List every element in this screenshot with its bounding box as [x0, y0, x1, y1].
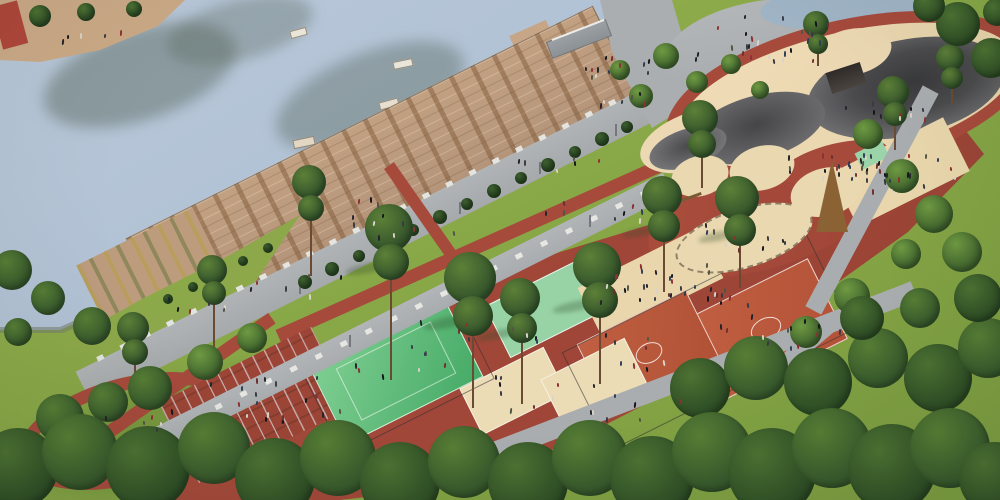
tree-canopy	[31, 281, 65, 315]
tree-canopy	[595, 132, 609, 146]
person	[809, 31, 811, 37]
person	[822, 176, 824, 181]
tree-canopy	[263, 243, 273, 253]
person	[80, 33, 82, 39]
tree-canopy	[77, 3, 95, 21]
tree-canopy	[238, 256, 248, 266]
tree-canopy	[891, 239, 921, 269]
person	[353, 222, 355, 228]
tree-canopy	[433, 210, 447, 224]
tree-canopy	[4, 318, 32, 346]
tree-canopy	[541, 158, 555, 172]
tree-canopy	[188, 282, 198, 292]
person	[378, 235, 380, 241]
person	[670, 279, 672, 284]
person	[275, 381, 277, 387]
tree-canopy	[840, 296, 884, 340]
person	[256, 378, 258, 384]
person	[67, 35, 69, 40]
person	[766, 236, 768, 241]
person	[784, 51, 786, 57]
person	[339, 275, 341, 280]
person	[801, 30, 803, 34]
tree-canopy	[461, 198, 473, 210]
tree-canopy	[373, 244, 409, 280]
tree-canopy	[292, 165, 326, 199]
tree-canopy	[670, 358, 730, 418]
tree-canopy	[724, 214, 756, 246]
tree-canopy	[126, 1, 142, 17]
person	[170, 409, 173, 415]
person	[899, 116, 901, 121]
person	[872, 189, 874, 195]
person	[922, 107, 924, 111]
tree-canopy	[784, 348, 852, 416]
person	[509, 407, 512, 413]
tree-canopy	[187, 344, 223, 380]
tree-canopy	[942, 232, 982, 272]
tree-canopy	[29, 5, 51, 27]
playground-pyramid-tower	[816, 160, 848, 232]
person	[743, 15, 746, 20]
person	[806, 37, 809, 43]
person	[597, 67, 599, 73]
person	[749, 55, 751, 60]
person	[643, 284, 645, 290]
tree-canopy	[724, 336, 788, 400]
tree-canopy	[853, 119, 883, 149]
tree-canopy	[487, 184, 501, 198]
tree-canopy	[128, 366, 172, 410]
person	[907, 172, 909, 178]
tree-canopy	[688, 130, 716, 158]
person	[168, 297, 170, 302]
tree-canopy	[721, 54, 741, 74]
person	[715, 293, 718, 299]
person	[465, 323, 467, 327]
person	[922, 184, 925, 189]
person	[646, 367, 649, 372]
person	[788, 155, 790, 161]
person	[591, 75, 593, 80]
person	[662, 360, 665, 366]
person	[869, 154, 872, 160]
tree-canopy	[500, 278, 540, 318]
person	[706, 263, 708, 268]
park-aerial-render	[0, 0, 1000, 500]
lamppost	[349, 335, 351, 347]
person	[613, 217, 615, 221]
tree-canopy	[900, 288, 940, 328]
person	[499, 376, 501, 380]
person	[316, 376, 318, 380]
lamppost	[615, 124, 617, 136]
tree-canopy	[954, 274, 1000, 322]
tree-canopy	[653, 43, 679, 69]
tree-canopy	[325, 262, 339, 276]
person	[742, 50, 744, 55]
tree-canopy	[298, 195, 324, 221]
tree-canopy	[122, 339, 148, 365]
tree-canopy	[883, 102, 907, 126]
person	[614, 340, 616, 345]
person	[643, 101, 646, 107]
person	[908, 154, 910, 159]
tree-canopy	[202, 281, 226, 305]
person	[879, 168, 881, 173]
person	[949, 167, 952, 172]
person	[208, 301, 210, 305]
person	[827, 23, 829, 28]
tree-canopy	[941, 67, 963, 89]
tree-canopy	[237, 323, 267, 353]
person	[418, 368, 420, 372]
person	[738, 248, 740, 253]
person	[392, 233, 394, 239]
tree-canopy	[353, 250, 365, 262]
person	[910, 113, 912, 118]
person	[745, 32, 747, 36]
tree-canopy	[106, 426, 190, 500]
tree-canopy	[515, 172, 527, 184]
person	[898, 177, 900, 183]
person	[761, 246, 763, 251]
person	[370, 197, 372, 203]
person	[605, 333, 607, 338]
person	[605, 283, 608, 288]
lamppost	[589, 215, 591, 227]
person	[694, 285, 696, 289]
person	[281, 420, 283, 425]
person	[891, 189, 893, 193]
person	[304, 398, 306, 403]
tree-canopy	[751, 81, 769, 99]
person	[618, 63, 620, 68]
person	[457, 328, 459, 333]
person	[713, 229, 715, 235]
person	[401, 221, 404, 227]
person	[309, 294, 311, 300]
person	[865, 156, 867, 160]
person	[746, 44, 748, 50]
person	[339, 409, 342, 414]
person	[761, 335, 763, 340]
person	[819, 40, 821, 46]
tree-canopy	[686, 71, 708, 93]
tree-canopy	[569, 146, 581, 158]
tree-canopy	[648, 210, 680, 242]
person	[716, 26, 718, 30]
tree-canopy	[885, 159, 919, 193]
person	[656, 288, 658, 294]
person	[883, 179, 886, 185]
person	[623, 288, 626, 293]
tree-canopy	[621, 121, 633, 133]
person	[189, 309, 191, 314]
tree-canopy	[73, 307, 111, 345]
tree-canopy	[915, 195, 953, 233]
person	[654, 269, 657, 274]
